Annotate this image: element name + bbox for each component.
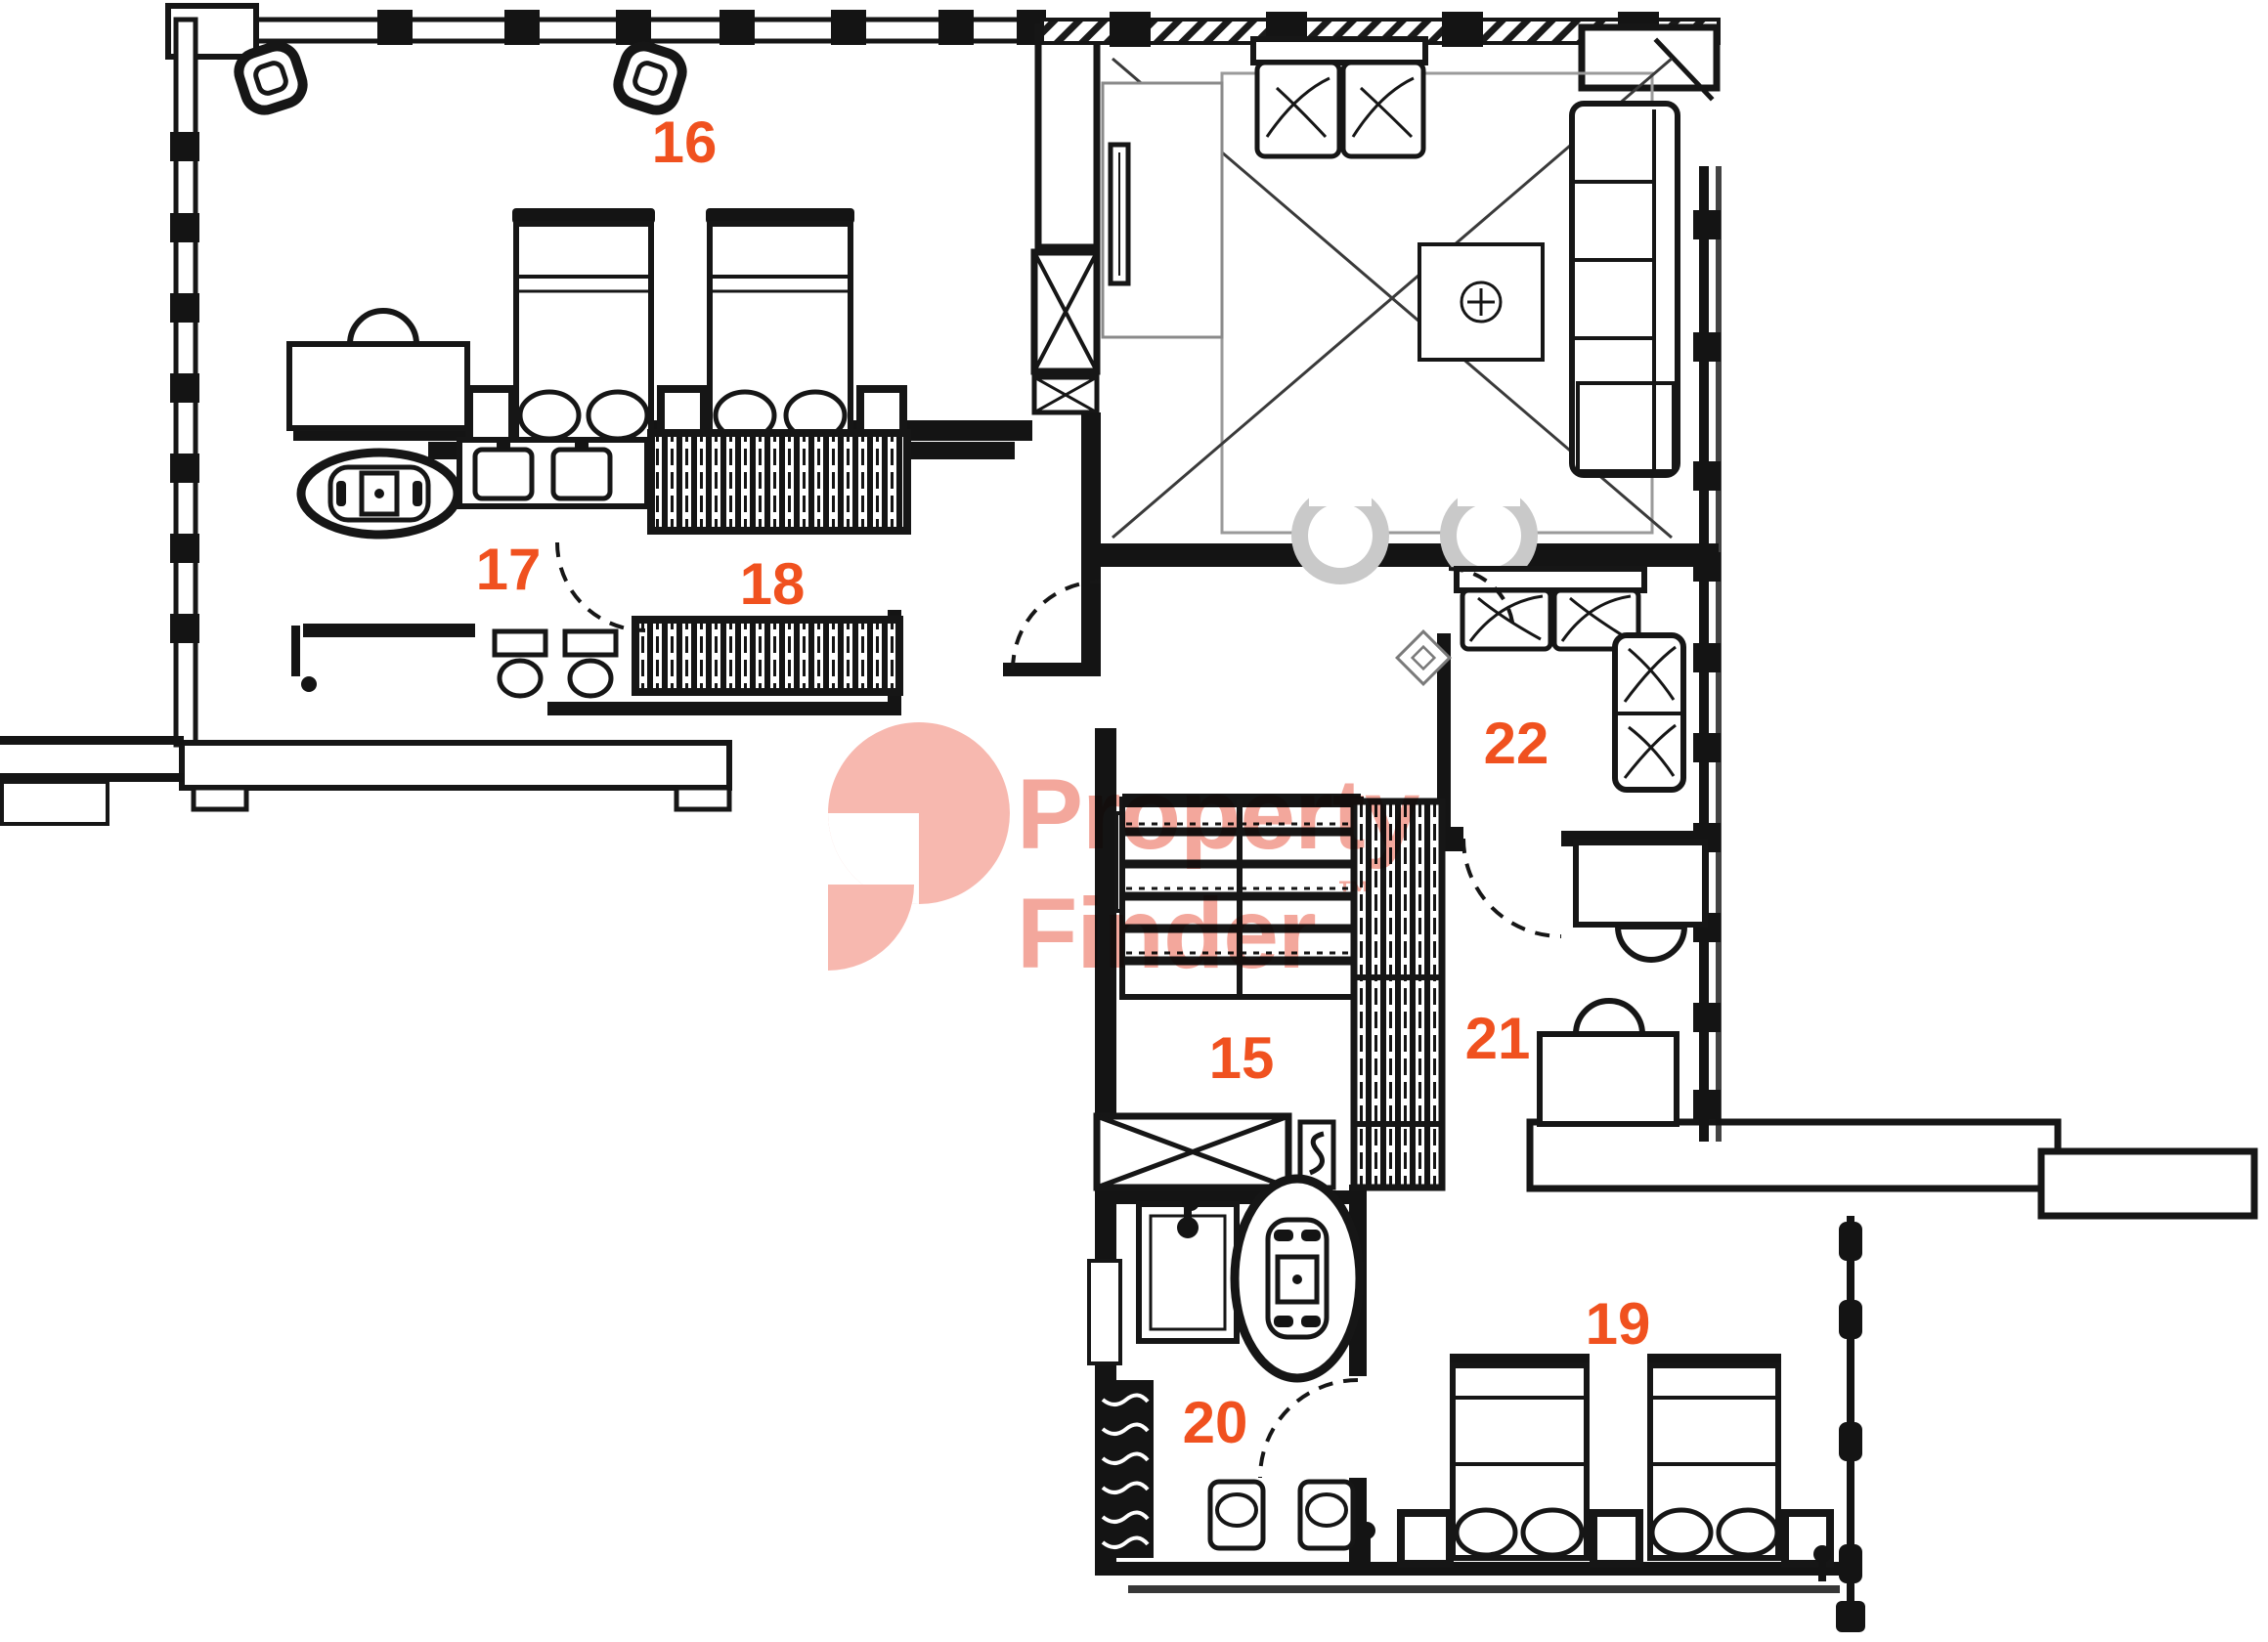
watermark-line1: Property <box>1017 758 1420 870</box>
wall-lower-bottom <box>1114 1562 1846 1576</box>
nightstand-icon <box>469 389 512 442</box>
floor-plan-page: Property Finder ™ 16 17 18 15 19 20 21 2… <box>0 0 2268 1642</box>
coffee-table-icon <box>1419 244 1543 360</box>
twin-bed-icon <box>1647 1354 1781 1558</box>
nightstand-icon <box>1593 1513 1639 1564</box>
wall-notch-right <box>676 788 729 809</box>
wardrobe-icon <box>635 620 899 692</box>
room-label-21: 21 <box>1465 1006 1531 1071</box>
room-label-19: 19 <box>1586 1291 1651 1357</box>
sofa-icon <box>1253 39 1425 156</box>
nightstand-icon <box>1401 1513 1450 1564</box>
wall-stub-22 <box>1444 827 1463 851</box>
ceiling-speaker-icon <box>234 41 308 115</box>
twin-bed-icon <box>706 208 854 442</box>
chair-icon <box>1618 927 1684 960</box>
room-21 <box>1540 843 1705 1124</box>
wall-wc-partition <box>303 624 475 637</box>
floor-plan-svg: Property Finder ™ 16 17 18 15 19 20 21 2… <box>0 0 2268 1642</box>
watermark-trademark: ™ <box>1337 875 1371 912</box>
twin-bed-icon <box>1450 1354 1590 1558</box>
room-label-22: 22 <box>1484 711 1549 776</box>
shower-icon <box>1139 1204 1237 1341</box>
twin-bed-icon <box>512 208 655 442</box>
dresser-icon <box>289 311 467 428</box>
washbasin-icon <box>1210 1482 1263 1548</box>
wall-bottom-slab <box>182 743 729 788</box>
double-vanity-icon <box>459 440 647 506</box>
room-17 <box>301 440 647 696</box>
room-20 <box>1097 1179 1375 1562</box>
wardrobe-icon <box>651 433 907 531</box>
balcony <box>1813 1216 1865 1632</box>
wall-living-bottom <box>1083 543 1719 567</box>
property-finder-logo-icon <box>828 722 1010 971</box>
linen-cabinet-icon <box>1097 1380 1154 1558</box>
wall-niche <box>1089 1261 1120 1363</box>
room-19 <box>1401 1354 1830 1564</box>
armchair-icon <box>1615 635 1683 790</box>
bidet-icon <box>565 631 616 696</box>
wc-door-leaf <box>291 626 300 676</box>
floor-line-2 <box>1128 1585 1840 1593</box>
toilet-icon <box>495 631 545 696</box>
door-arc-20 <box>1260 1380 1358 1478</box>
balcony-parapet-a <box>1530 1122 2058 1188</box>
elevator-icon <box>1097 1116 1288 1188</box>
chair-icon <box>1576 1001 1642 1034</box>
elevator-shaft-icon <box>1034 252 1097 371</box>
room-label-18: 18 <box>740 551 806 617</box>
duct-icon <box>1034 377 1097 412</box>
watermark-line2: Finder <box>1017 878 1316 989</box>
room-label-16: 16 <box>652 109 718 175</box>
room-label-20: 20 <box>1183 1390 1248 1455</box>
room-16 <box>234 41 1015 459</box>
desk-icon <box>1576 843 1705 925</box>
washbasin-icon <box>1300 1482 1353 1548</box>
walkway-strip <box>2 782 108 824</box>
door-arc-21 <box>1463 839 1561 936</box>
room-label-17: 17 <box>476 537 542 602</box>
bathtub-icon <box>301 453 458 535</box>
room-label-15: 15 <box>1209 1025 1275 1091</box>
drain-icon <box>1182 1193 1199 1211</box>
balcony-parapet-b <box>2041 1151 2254 1216</box>
wc-door-knob-icon <box>301 676 317 692</box>
ceiling-speaker-icon <box>613 41 687 115</box>
shaft-column <box>1038 27 1097 247</box>
desk-icon <box>1540 1034 1677 1124</box>
barrel-chair-icon <box>1291 479 1389 584</box>
sectional-sofa-icon <box>1572 104 1678 475</box>
tv-console-icon <box>1103 83 1222 337</box>
bathtub-icon <box>1235 1179 1360 1378</box>
wall-notch-left <box>194 788 246 809</box>
walkway-line-upper <box>0 736 184 745</box>
wall-18-bottom <box>547 702 901 715</box>
